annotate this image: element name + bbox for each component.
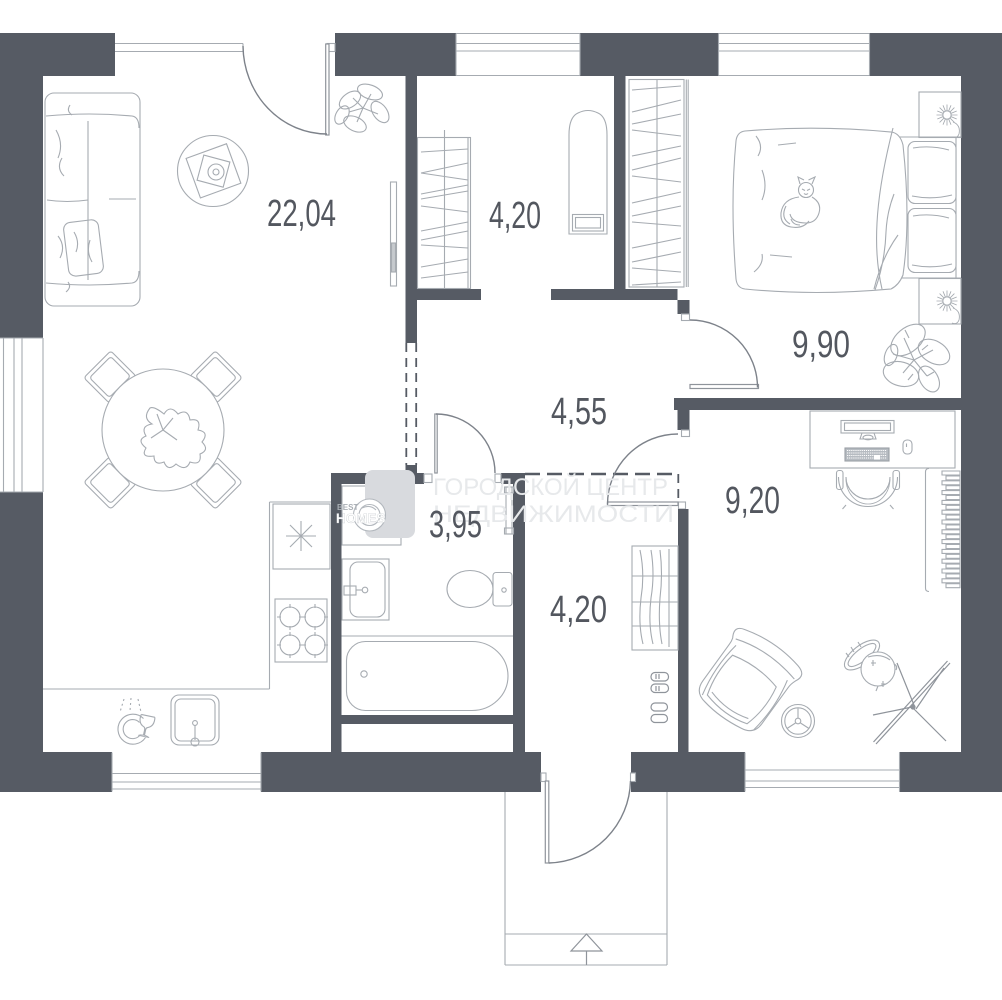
svg-text:4,20: 4,20 <box>489 195 541 237</box>
svg-text:ГОРОДСКОЙ ЦЕНТР: ГОРОДСКОЙ ЦЕНТР <box>433 473 668 501</box>
svg-text:22,04: 22,04 <box>267 193 336 235</box>
svg-text:4,20: 4,20 <box>550 589 607 631</box>
svg-text:HOMES: HOMES <box>336 511 386 526</box>
svg-text:3,95: 3,95 <box>429 504 482 546</box>
svg-text:9,20: 9,20 <box>725 480 780 522</box>
svg-text:9,90: 9,90 <box>792 324 850 366</box>
svg-text:4,55: 4,55 <box>551 391 607 433</box>
